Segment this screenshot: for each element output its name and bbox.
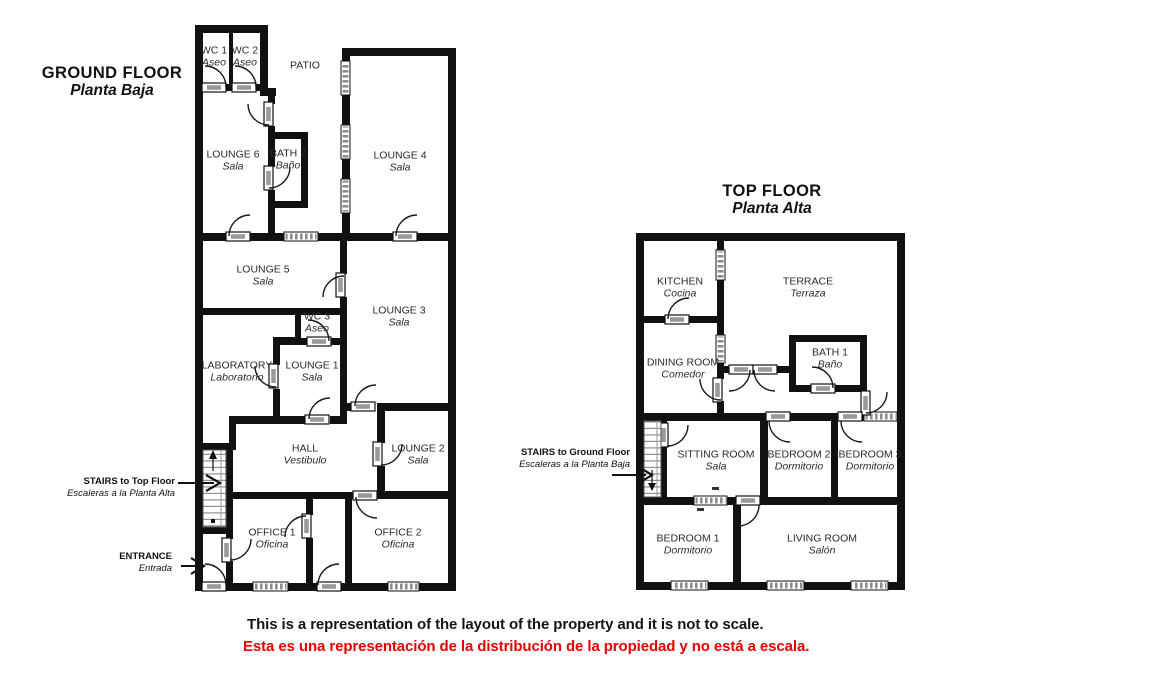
annotation-stairs-to-top-floor: STAIRS to Top Floor Escaleras a la Plant… [67, 476, 175, 499]
room-label-lounge3: LOUNGE 3Sala [372, 306, 425, 329]
room-name-es: Sala [285, 372, 338, 384]
annotation-entrance: ENTRANCE Entrada [119, 551, 172, 574]
room-name: LOUNGE 6 [206, 150, 259, 162]
room-label-bedroom1: BEDROOM 1Dormitorio [656, 534, 719, 557]
room-name-es: Aseo [201, 57, 227, 69]
annotation-line-en: STAIRS to Ground Floor [519, 447, 630, 459]
room-name: LABORATORY [202, 361, 273, 373]
top-floor-title-es: Planta Alta [722, 200, 821, 217]
room-label-bath1: BATH 1Baño [812, 348, 848, 371]
room-name: BEDROOM 1 [656, 534, 719, 546]
room-name: BATH 2 [270, 149, 306, 161]
room-name: BEDROOM 2 [767, 450, 830, 462]
room-name: KITCHEN [657, 277, 703, 289]
ground-stairs [203, 450, 226, 527]
room-name: LOUNGE 1 [285, 361, 338, 373]
room-name: WC 1 [201, 46, 227, 58]
ground-floor-title: GROUND FLOOR Planta Baja [42, 65, 182, 99]
annotation-line-en: STAIRS to Top Floor [67, 476, 175, 488]
annotation-stairs-to-ground-floor: STAIRS to Ground Floor Escaleras a la Pl… [519, 447, 630, 470]
room-name-es: Comedor [647, 369, 719, 381]
annotation-line-es: Entrada [119, 563, 172, 575]
room-label-wc3: WC 3Aseo [304, 312, 330, 335]
room-label-office2: OFFICE 2Oficina [374, 528, 421, 551]
room-name: LIVING ROOM [787, 534, 857, 546]
room-label-wc1: WC 1Aseo [201, 46, 227, 69]
room-name: LOUNGE 4 [373, 151, 426, 163]
room-label-terrace: TERRACETerraza [783, 277, 833, 300]
room-name: LOUNGE 5 [236, 265, 289, 277]
room-name-es: Aseo [232, 57, 258, 69]
annotation-line-es: Escaleras a la Planta Alta [67, 488, 175, 500]
room-label-sitting-room: SITTING ROOMSala [678, 450, 755, 473]
room-name-es: Oficina [248, 539, 295, 551]
room-name-es: Dormitorio [767, 461, 830, 473]
disclaimer-spanish: Esta es una representación de la distrib… [243, 638, 809, 655]
room-name: BEDROOM 3 [838, 450, 901, 462]
room-name: LOUNGE 3 [372, 306, 425, 318]
room-label-lounge1: LOUNGE 1Sala [285, 361, 338, 384]
room-name: TERRACE [783, 277, 833, 289]
room-name: WC 3 [304, 312, 330, 324]
floor-plan-canvas [0, 0, 1170, 675]
room-name-es: Sala [373, 162, 426, 174]
room-name-es: Aseo [304, 323, 330, 335]
room-name-es: Sala [372, 317, 425, 329]
room-name-es: Cocina [657, 288, 703, 300]
room-name-es: Laboratorio [202, 372, 273, 384]
room-label-bath2: BATH 2Baño [270, 149, 306, 172]
room-label-laboratory: LABORATORYLaboratorio [202, 361, 273, 384]
room-label-office1: OFFICE 1Oficina [248, 528, 295, 551]
ground-floor-title-en: GROUND FLOOR [42, 65, 182, 82]
room-label-lounge2: LOUNGE 2Sala [391, 444, 444, 467]
annotation-line-es: Escaleras a la Planta Baja [519, 459, 630, 471]
room-label-bedroom3: BEDROOM 3Dormitorio [838, 450, 901, 473]
room-name-es: Baño [812, 359, 848, 371]
room-name-es: Sala [236, 276, 289, 288]
room-name-es: Terraza [783, 288, 833, 300]
room-name: OFFICE 1 [248, 528, 295, 540]
room-name-es: Salón [787, 545, 857, 557]
room-name-es: Vestibulo [284, 455, 327, 467]
room-name: OFFICE 2 [374, 528, 421, 540]
room-label-dining-room: DINING ROOMComedor [647, 358, 719, 381]
room-label-bedroom2: BEDROOM 2Dormitorio [767, 450, 830, 473]
room-label-patio: PATIO [290, 60, 320, 72]
floor-plan-page: GROUND FLOOR Planta Baja TOP FLOOR Plant… [0, 0, 1170, 675]
disclaimer-english: This is a representation of the layout o… [247, 616, 763, 633]
top-floor-title-en: TOP FLOOR [722, 183, 821, 200]
room-name: HALL [284, 444, 327, 456]
room-label-lounge5: LOUNGE 5Sala [236, 265, 289, 288]
room-name-es: Baño [270, 160, 306, 172]
room-name: DINING ROOM [647, 358, 719, 370]
room-label-wc2: WC 2Aseo [232, 46, 258, 69]
room-name: PATIO [290, 60, 320, 72]
ground-floor-title-es: Planta Baja [42, 82, 182, 99]
room-name-es: Dormitorio [838, 461, 901, 473]
room-name: LOUNGE 2 [391, 444, 444, 456]
room-name: SITTING ROOM [678, 450, 755, 462]
room-name: WC 2 [232, 46, 258, 58]
top-floor-title: TOP FLOOR Planta Alta [722, 183, 821, 217]
annotation-line-en: ENTRANCE [119, 551, 172, 563]
room-label-hall: HALLVestibulo [284, 444, 327, 467]
room-name-es: Oficina [374, 539, 421, 551]
room-name-es: Sala [206, 161, 259, 173]
room-name-es: Sala [678, 461, 755, 473]
room-label-lounge4: LOUNGE 4Sala [373, 151, 426, 174]
room-name: BATH 1 [812, 348, 848, 360]
top-stairs [644, 421, 661, 497]
room-name-es: Dormitorio [656, 545, 719, 557]
room-label-living-room: LIVING ROOMSalón [787, 534, 857, 557]
room-name-es: Sala [391, 455, 444, 467]
room-label-kitchen: KITCHENCocina [657, 277, 703, 300]
room-label-lounge6: LOUNGE 6Sala [206, 150, 259, 173]
